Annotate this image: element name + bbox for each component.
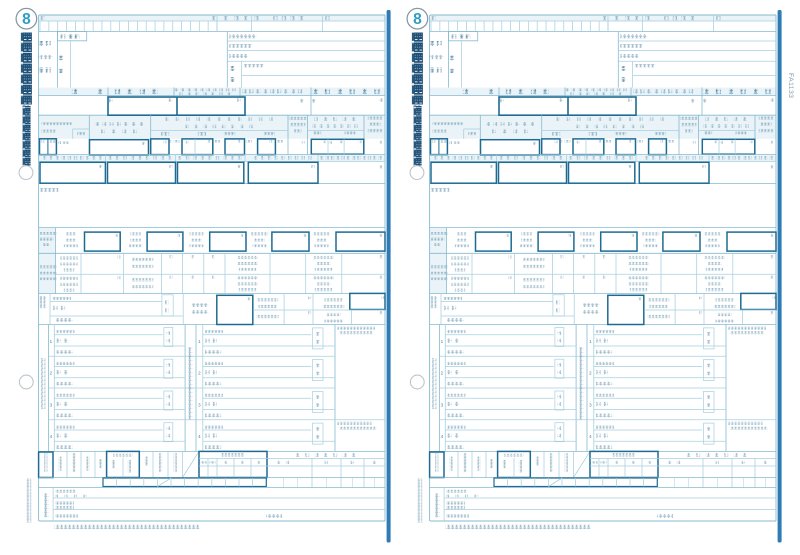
svg-text:FA1133: FA1133 — [787, 73, 794, 98]
svg-text:8: 8 — [22, 11, 31, 28]
